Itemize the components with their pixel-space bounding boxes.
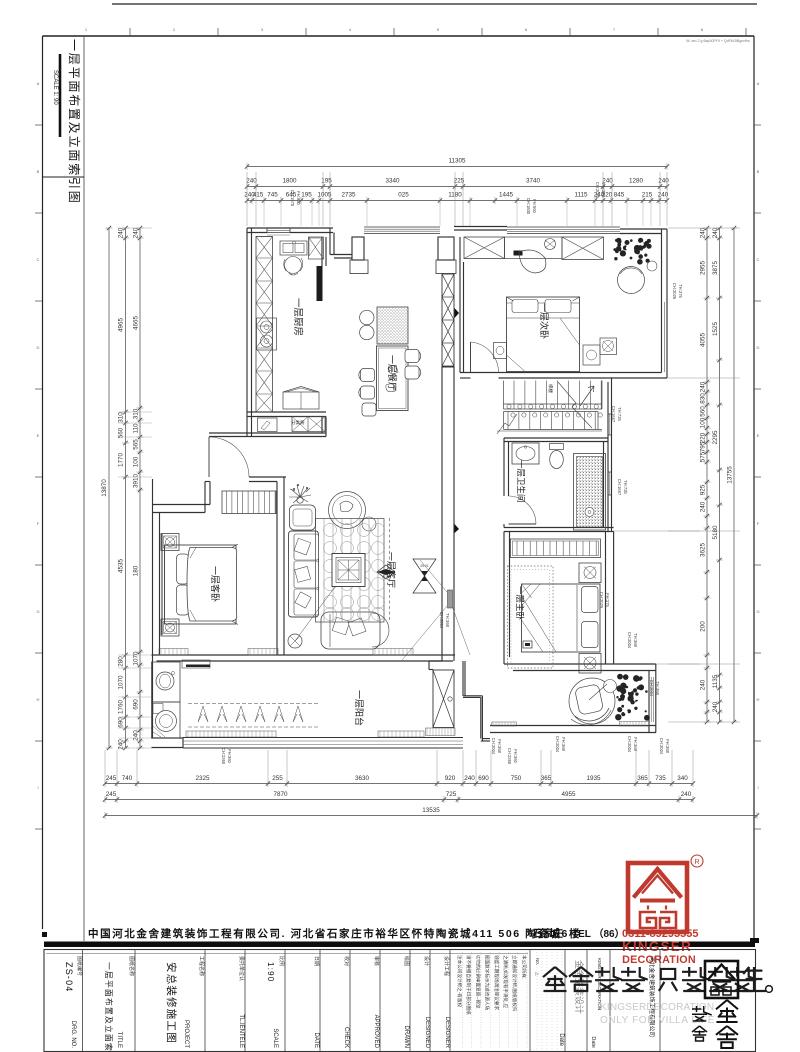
svg-text:240: 240 (712, 701, 719, 712)
svg-text:280: 280 (118, 656, 125, 667)
svg-text:I: I (757, 785, 758, 790)
svg-text:SCALE 1: 90: SCALE 1: 90 (52, 70, 58, 105)
svg-text:日期: 日期 (313, 956, 319, 966)
svg-text:415: 415 (253, 192, 264, 199)
svg-text:215: 215 (642, 192, 653, 199)
svg-text:310: 310 (118, 412, 125, 423)
svg-text:240: 240 (700, 227, 707, 238)
svg-text:TH:368: TH:368 (633, 633, 638, 647)
svg-text:CH:2025: CH:2025 (672, 283, 677, 300)
svg-text:240: 240 (118, 227, 125, 238)
svg-text:240: 240 (133, 730, 140, 741)
svg-text:绘图: 绘图 (403, 956, 410, 966)
svg-text:365: 365 (637, 775, 648, 782)
svg-text:石家庄: 石家庄 (532, 927, 563, 940)
svg-text:CH:2004: CH:2004 (627, 632, 632, 649)
svg-text:110: 110 (133, 423, 140, 434)
svg-text:830: 830 (700, 393, 707, 404)
svg-text:565: 565 (133, 439, 140, 450)
svg-text:CH:2004: CH:2004 (555, 736, 560, 753)
svg-text:TH:368: TH:368 (445, 613, 450, 627)
svg-text:200: 200 (700, 621, 707, 632)
svg-text:安总装修施工图: 安总装修施工图 (165, 962, 178, 1044)
svg-text:TEL （86）: TEL （86） (572, 927, 625, 940)
svg-text:CH:1667: CH:1667 (617, 479, 622, 496)
svg-text:APPROVED: APPROVED (373, 1015, 379, 1049)
svg-text:11305: 11305 (448, 158, 466, 165)
svg-text:310: 310 (133, 408, 140, 419)
svg-text:195: 195 (301, 192, 312, 199)
svg-text:FH:560: FH:560 (532, 199, 537, 213)
svg-text:740: 740 (122, 775, 133, 782)
svg-text:CH:1570: CH:1570 (290, 190, 295, 207)
svg-text:3340: 3340 (385, 178, 400, 185)
svg-text:一层客卧: 一层客卧 (210, 566, 221, 602)
svg-text:CH:2360: CH:2360 (221, 748, 226, 765)
svg-text:13755: 13755 (727, 466, 734, 484)
svg-text:E: E (757, 433, 760, 438)
svg-text:240: 240 (712, 227, 719, 238)
svg-text:G: G (36, 609, 39, 614)
svg-text:7870: 7870 (273, 791, 288, 798)
svg-text:1070: 1070 (118, 675, 125, 690)
svg-text:3910: 3910 (133, 474, 140, 489)
svg-text:CH:2360: CH:2360 (507, 748, 512, 765)
svg-text:1115: 1115 (574, 192, 588, 199)
svg-text:920: 920 (445, 775, 456, 782)
svg-text:340: 340 (677, 775, 688, 782)
svg-text:N0.: N0. (535, 958, 540, 965)
svg-text:2295: 2295 (712, 430, 719, 445)
svg-text:G: G (756, 609, 759, 614)
svg-text:240: 240 (700, 679, 707, 690)
svg-text:795: 795 (700, 441, 707, 452)
svg-text:设计: 设计 (423, 956, 430, 966)
svg-text:TH:725: TH:725 (617, 407, 622, 421)
svg-text:690: 690 (478, 775, 489, 782)
svg-text:本公司所有.: 本公司所有. (520, 955, 527, 979)
svg-text:D: D (37, 345, 40, 350)
svg-text:180: 180 (133, 565, 140, 576)
svg-text:FH:930: FH:930 (296, 191, 301, 205)
svg-text:220: 220 (700, 432, 707, 443)
svg-text:Date: Date (590, 1036, 596, 1048)
svg-text:FH:375: FH:375 (601, 183, 606, 197)
svg-text:240: 240 (133, 227, 140, 238)
svg-text:审核: 审核 (373, 956, 380, 966)
svg-text:PROJECT: PROJECT (183, 1020, 189, 1048)
svg-text:1280: 1280 (629, 178, 644, 185)
svg-text:E: E (37, 433, 40, 438)
svg-text:SCALE: SCALE (272, 1028, 278, 1048)
svg-text:一层餐厅: 一层餐厅 (387, 355, 398, 391)
svg-text:△: △ (535, 972, 540, 976)
svg-text:1:90: 1:90 (266, 962, 275, 982)
svg-text:3630: 3630 (355, 775, 370, 782)
svg-text:CHECK: CHECK (343, 1027, 349, 1048)
svg-text:领度工期现场调洽审议要求: 领度工期现场调洽审议要求 (493, 955, 500, 1011)
svg-text:100: 100 (700, 417, 707, 428)
svg-text:3625: 3625 (700, 543, 707, 558)
svg-text:560: 560 (700, 406, 707, 417)
svg-text:575: 575 (700, 451, 707, 462)
svg-text:C: C (37, 257, 40, 262)
svg-text:735: 735 (655, 775, 666, 782)
svg-text:FH:368: FH:368 (665, 739, 670, 753)
svg-text:4955: 4955 (561, 791, 576, 798)
svg-text:H: H (37, 697, 40, 702)
svg-text:FH:368: FH:368 (561, 737, 566, 751)
svg-text:C: C (757, 257, 760, 262)
svg-text:DECORATION: DECORATION (622, 954, 696, 966)
svg-text:690: 690 (133, 699, 140, 710)
svg-text:FH:360: FH:360 (227, 749, 232, 763)
svg-text:25-01: 25-01 (420, 564, 428, 568)
svg-text:1525: 1525 (712, 322, 719, 337)
svg-text:一层次卧: 一层次卧 (539, 303, 550, 339)
svg-text:5180: 5180 (712, 525, 719, 540)
svg-text:一层厨房: 一层厨房 (292, 298, 304, 336)
svg-text:H: H (757, 697, 760, 702)
svg-text:校对: 校对 (343, 956, 350, 966)
svg-text:1935: 1935 (586, 775, 601, 782)
svg-text:注本公司设计师之-有版权: 注本公司设计师之-有版权 (456, 955, 463, 1007)
svg-text:TH:72b: TH:72b (623, 480, 628, 494)
svg-text:2735: 2735 (341, 192, 356, 199)
svg-text:一层主卧: 一层主卧 (515, 586, 525, 621)
svg-text:设计工程: 设计工程 (443, 956, 450, 976)
svg-text:1760: 1760 (118, 700, 125, 715)
svg-text:2955: 2955 (700, 261, 707, 276)
svg-text:立即通知设计师,图纸版权归: 立即通知设计师,图纸版权归 (511, 955, 518, 1012)
svg-text:DRAWN: DRAWN (403, 1026, 409, 1048)
svg-text:DRG. NO.: DRG. NO. (70, 1021, 76, 1049)
svg-text:A: A (37, 81, 40, 86)
svg-text:245: 245 (106, 775, 117, 782)
svg-text:1135: 1135 (712, 674, 719, 688)
svg-text:4965: 4965 (118, 318, 125, 333)
svg-text:CH:2004: CH:2004 (491, 738, 496, 755)
svg-text:1800: 1800 (282, 178, 297, 185)
svg-text:CH:2025: CH:2025 (595, 182, 600, 199)
svg-text:100: 100 (133, 456, 140, 467)
svg-text:D: D (757, 345, 760, 350)
svg-text:FH:368: FH:368 (633, 737, 638, 751)
svg-text:TITLE: TITLE (116, 1032, 122, 1048)
svg-text:3740: 3740 (526, 178, 541, 185)
svg-text:图面数字标示为准资源人场: 图面数字标示为准资源人场 (484, 955, 491, 1011)
svg-text:1070: 1070 (133, 651, 140, 666)
svg-text:4055: 4055 (700, 333, 707, 348)
svg-text:13870: 13870 (101, 479, 108, 497)
svg-text:DATE: DATE (313, 1032, 319, 1048)
svg-text:一层平面布置及立面索引图: 一层平面布置及立面索引图 (67, 39, 82, 205)
svg-text:560: 560 (118, 427, 125, 438)
svg-text:2325: 2325 (195, 775, 210, 782)
svg-text:690: 690 (118, 717, 125, 728)
svg-text:1180: 1180 (448, 192, 462, 199)
svg-text:I: I (37, 785, 38, 790)
svg-text:CH:2004: CH:2004 (659, 738, 664, 755)
svg-text:240: 240 (681, 791, 692, 798)
svg-text:KINGSER: KINGSER (622, 939, 692, 954)
svg-text:请不要擅自复制于印部分图纸: 请不要擅自复制于印部分图纸 (465, 955, 472, 1015)
svg-text:255: 255 (272, 775, 283, 782)
svg-text:委托单位认: 委托单位认 (238, 956, 245, 981)
svg-text:3875: 3875 (712, 261, 719, 276)
svg-text:750: 750 (511, 775, 522, 782)
svg-text:240: 240 (246, 178, 257, 185)
svg-text:W. am 2 g 6ap30FF9 + QdFb15Bgc: W. am 2 g 6ap30FF9 + QdFb15Bgcvfhs (686, 39, 750, 43)
svg-text:比例: 比例 (278, 956, 285, 966)
svg-text:TL.IENTELE: TL.IENTELE (238, 1014, 244, 1048)
svg-text:1770: 1770 (118, 453, 125, 468)
svg-text:工程名称: 工程名称 (198, 956, 205, 976)
svg-text:1445: 1445 (499, 192, 514, 199)
svg-text:图纸名称: 图纸名称 (128, 956, 135, 976)
svg-text:245: 245 (106, 791, 117, 798)
svg-text:一层阳台: 一层阳台 (354, 690, 365, 726)
svg-text:DESIGNED: DESIGNED (424, 1017, 430, 1049)
svg-text:切勿的比例审置复原--预览: 切勿的比例审置复原--预览 (474, 955, 481, 1009)
svg-text:R: R (694, 859, 699, 866)
svg-text:一层客厅: 一层客厅 (386, 552, 397, 588)
svg-text:925: 925 (700, 484, 707, 495)
svg-text:025: 025 (398, 192, 409, 199)
svg-text:梯楼: 梯楼 (547, 384, 554, 393)
svg-text:CH:2004: CH:2004 (627, 736, 632, 753)
svg-text:分类阁: 分类阁 (291, 419, 305, 426)
svg-text:A: A (757, 81, 760, 86)
svg-text:CH:1830: CH:1830 (526, 198, 531, 215)
svg-text:240: 240 (700, 501, 707, 512)
svg-text:一层平面布置及立面索引图: 一层平面布置及立面索引图 (104, 962, 114, 1052)
svg-text:ZS-04: ZS-04 (64, 962, 74, 993)
svg-text:13535: 13535 (422, 807, 440, 814)
svg-text:B: B (757, 169, 760, 174)
svg-text:FH:368: FH:368 (497, 739, 502, 753)
svg-text:365: 365 (541, 775, 552, 782)
svg-text:745: 745 (267, 192, 278, 199)
svg-text:B: B (37, 169, 40, 174)
svg-text:中国河北金舍建筑装饰工程有限公司. 河北省石家庄市裕华区怀特: 中国河北金舍建筑装饰工程有限公司. 河北省石家庄市裕华区怀特陶瓷城411 506… (88, 927, 581, 940)
svg-text:4665: 4665 (133, 316, 140, 331)
svg-text:725: 725 (446, 791, 457, 798)
svg-text:TH:375: TH:375 (678, 284, 683, 298)
svg-text:845: 845 (614, 192, 625, 199)
svg-text:图纸编号: 图纸编号 (76, 956, 83, 976)
svg-text:240: 240 (464, 775, 475, 782)
svg-text:FH:360: FH:360 (513, 749, 518, 763)
svg-text:一层卫生间: 一层卫生间 (516, 460, 526, 503)
svg-text:240: 240 (700, 381, 707, 392)
svg-text:Date: Date (558, 1033, 564, 1046)
svg-text:之清晰,如发现有手滑处,应: 之清晰,如发现有手滑处,应 (502, 955, 509, 1008)
svg-text:4535: 4535 (118, 559, 125, 574)
svg-text:DESIGNER: DESIGNER (444, 1017, 450, 1049)
